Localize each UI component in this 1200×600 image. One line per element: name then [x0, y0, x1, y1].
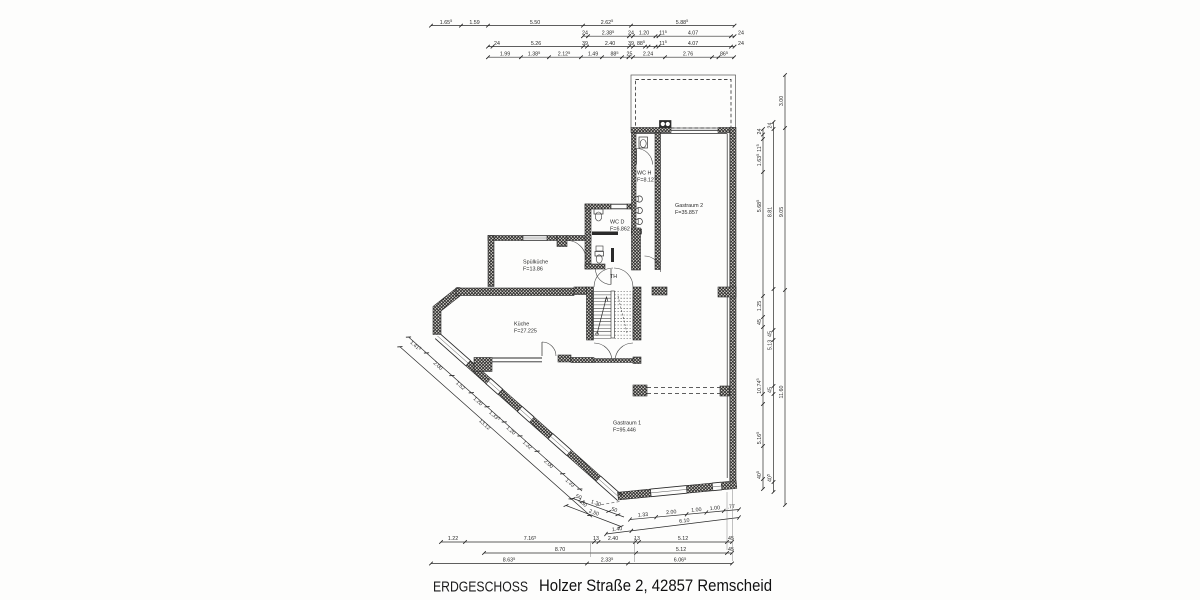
svg-text:1.22: 1.22: [448, 536, 458, 542]
svg-text:2.40: 2.40: [605, 41, 615, 47]
svg-text:Holzer Straße 2, 42857 Remsche: Holzer Straße 2, 42857 Remscheid: [539, 576, 772, 595]
svg-text:5.12: 5.12: [676, 547, 686, 553]
svg-text:Küche: Küche: [514, 322, 529, 328]
svg-text:11.60: 11.60: [779, 386, 785, 399]
svg-text:F=8.127: F=8.127: [637, 178, 657, 184]
svg-text:F=6.862: F=6.862: [610, 227, 630, 233]
svg-text:1.99: 1.99: [500, 51, 510, 57]
svg-text:Gastraum 1: Gastraum 1: [613, 421, 641, 427]
svg-text:5.13: 5.13: [767, 340, 773, 350]
svg-text:4.07: 4.07: [688, 41, 698, 47]
svg-text:2.76: 2.76: [683, 51, 693, 57]
svg-text:2.00: 2.00: [666, 509, 677, 516]
svg-text:24: 24: [628, 30, 634, 36]
svg-text:45: 45: [728, 536, 734, 542]
svg-text:5.12: 5.12: [678, 536, 688, 542]
svg-text:.77: .77: [727, 504, 735, 511]
svg-text:45: 45: [767, 387, 773, 393]
svg-text:WC H: WC H: [637, 171, 651, 177]
svg-text:8.70: 8.70: [555, 547, 565, 553]
svg-text:3.00: 3.00: [779, 96, 785, 106]
svg-text:Gastraum 2: Gastraum 2: [675, 203, 703, 209]
svg-text:TH: TH: [610, 274, 617, 280]
svg-text:F=35.857: F=35.857: [675, 210, 698, 216]
svg-text:1.25: 1.25: [757, 301, 763, 311]
svg-text:24: 24: [767, 123, 773, 129]
svg-text:1.59: 1.59: [469, 20, 479, 26]
svg-text:24: 24: [494, 41, 500, 47]
svg-text:24: 24: [738, 30, 744, 36]
svg-text:4.07: 4.07: [688, 30, 698, 36]
svg-text:39: 39: [628, 41, 634, 47]
svg-text:39: 39: [582, 41, 588, 47]
svg-text:6.10: 6.10: [679, 518, 690, 525]
svg-text:1.00: 1.00: [691, 507, 702, 514]
svg-text:F=13.86: F=13.86: [523, 267, 543, 273]
svg-text:10.745: 10.745: [756, 378, 763, 393]
svg-text:F=95.446: F=95.446: [613, 428, 636, 434]
svg-text:24: 24: [582, 30, 588, 36]
svg-text:45: 45: [728, 547, 734, 553]
svg-text:Spülküche: Spülküche: [523, 260, 548, 266]
svg-text:1.00: 1.00: [710, 505, 721, 512]
svg-text:1.20: 1.20: [639, 30, 649, 36]
svg-text:45: 45: [767, 331, 773, 337]
svg-text:5.50: 5.50: [530, 20, 540, 26]
svg-text:ERDGESCHOSS: ERDGESCHOSS: [433, 579, 528, 596]
svg-text:45: 45: [757, 319, 763, 325]
svg-text:1.33: 1.33: [638, 512, 649, 519]
svg-text:WC D: WC D: [610, 220, 624, 226]
svg-text:8.81: 8.81: [767, 207, 773, 217]
svg-text:9.05: 9.05: [779, 207, 785, 217]
svg-text:25: 25: [627, 51, 633, 57]
svg-text:1.40: 1.40: [612, 526, 623, 533]
svg-text:24: 24: [757, 129, 763, 135]
svg-text:13: 13: [634, 536, 640, 542]
svg-text:13: 13: [593, 536, 599, 542]
svg-text:2.24: 2.24: [643, 51, 653, 57]
svg-text:2.40: 2.40: [608, 536, 618, 542]
svg-text:1.49: 1.49: [588, 51, 598, 57]
svg-text:F=27.225: F=27.225: [514, 329, 537, 335]
svg-text:24: 24: [738, 41, 744, 47]
svg-text:5.26: 5.26: [531, 41, 541, 47]
